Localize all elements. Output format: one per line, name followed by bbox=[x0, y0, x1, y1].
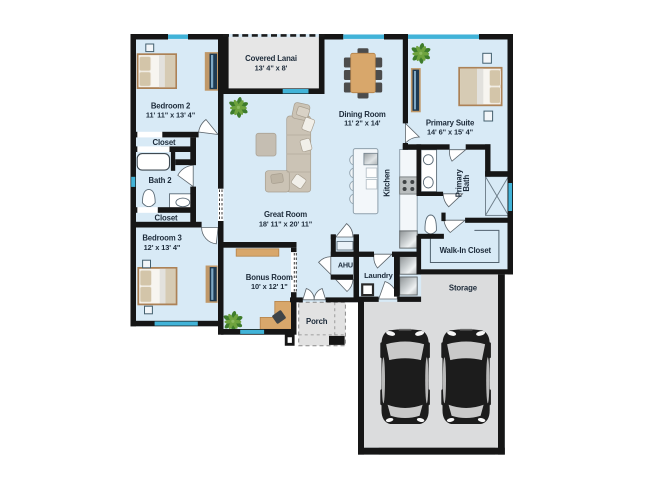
svg-text:Kitchen: Kitchen bbox=[382, 169, 391, 197]
svg-text:Bonus Room: Bonus Room bbox=[246, 273, 293, 282]
svg-text:Closet: Closet bbox=[155, 213, 178, 222]
svg-text:12' x 13' 4": 12' x 13' 4" bbox=[144, 243, 181, 252]
svg-text:AHU: AHU bbox=[338, 261, 353, 270]
svg-text:Bath: Bath bbox=[462, 175, 471, 192]
svg-text:10' x 12' 1": 10' x 12' 1" bbox=[251, 282, 288, 291]
svg-text:Laundry: Laundry bbox=[364, 271, 394, 280]
svg-text:Covered Lanai: Covered Lanai bbox=[245, 54, 297, 63]
svg-text:Walk-In Closet: Walk-In Closet bbox=[440, 246, 492, 255]
svg-text:Bath 2: Bath 2 bbox=[149, 176, 173, 185]
svg-text:Storage: Storage bbox=[449, 284, 478, 293]
svg-text:Porch: Porch bbox=[306, 317, 328, 326]
svg-text:Closet: Closet bbox=[153, 138, 176, 147]
svg-text:11' 11" x 13' 4": 11' 11" x 13' 4" bbox=[146, 111, 196, 120]
svg-text:11' 2" x 14': 11' 2" x 14' bbox=[344, 119, 381, 128]
svg-text:Bedroom 2: Bedroom 2 bbox=[151, 101, 191, 110]
svg-text:Bedroom 3: Bedroom 3 bbox=[142, 234, 182, 243]
svg-text:Great Room: Great Room bbox=[264, 210, 307, 219]
svg-text:13' 4" x 8': 13' 4" x 8' bbox=[255, 63, 288, 72]
svg-text:18' 11" x 20' 11": 18' 11" x 20' 11" bbox=[259, 219, 313, 228]
svg-text:14' 6" x 15' 4": 14' 6" x 15' 4" bbox=[427, 127, 474, 136]
